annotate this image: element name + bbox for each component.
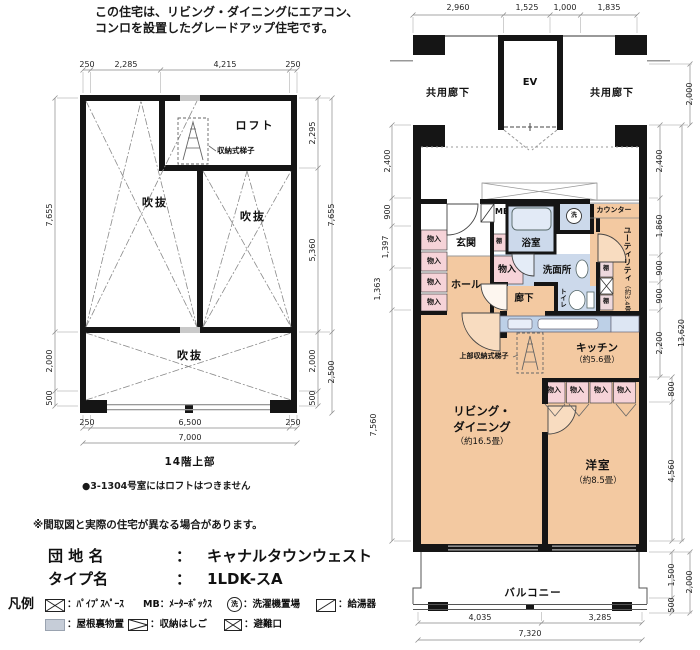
room-label-corridor-left: 共用廊下: [426, 89, 470, 99]
legend-stow-ladder: ：収納はしご: [150, 620, 207, 630]
loft-ladder-icon: [178, 118, 216, 164]
room-label-corridor-right: 共用廊下: [590, 89, 634, 99]
legend-mb: MB: [143, 599, 160, 610]
kitchen-size: （約5.6畳）: [575, 356, 620, 364]
dim: 1,860: [656, 215, 664, 238]
shelf-label: 棚: [603, 299, 609, 305]
stow-ladder-legend-icon: [128, 619, 148, 631]
dim: 2,500: [328, 361, 336, 384]
dim: 1,525: [516, 4, 539, 12]
room-label-void-3: 吹抜: [177, 350, 203, 361]
dim: 1,500: [668, 564, 676, 587]
utility-name: ユーティリティ: [623, 226, 632, 282]
dim: 2,400: [384, 150, 392, 173]
closet-label: 物入: [617, 387, 631, 394]
dim: 800: [668, 381, 676, 396]
room-label-loft: ロフト: [236, 120, 275, 131]
room-label-bath: 浴室: [521, 239, 540, 249]
room-label-living-1: リビング・: [453, 406, 511, 418]
dim: 250: [79, 61, 94, 69]
dim: 4,035: [469, 614, 492, 622]
dim: 1,363: [374, 278, 382, 301]
dim: 2,000: [686, 83, 694, 106]
sink-icon: [576, 260, 588, 278]
dim: 500: [309, 390, 317, 405]
bathtub-icon: [512, 208, 551, 230]
loft-plan-title: 14階上部: [164, 457, 215, 468]
dim: 900: [656, 260, 664, 275]
estate-name-label: 団 地 名: [48, 545, 176, 566]
shelf-label: 棚: [603, 266, 609, 272]
room-label-kitchen: キッチン: [576, 343, 618, 354]
pipe-space-icon: [600, 278, 613, 294]
estate-name-row: 団 地 名：キャナルタウンウェスト: [48, 545, 372, 566]
dim: 2,295: [309, 122, 317, 145]
dim: 7,655: [328, 204, 336, 227]
room-label-hall: ホール: [451, 281, 481, 291]
dim: 7,560: [370, 414, 378, 437]
shelf-label: 棚: [496, 239, 502, 245]
dim: 7,320: [519, 630, 542, 638]
header-note-line1: この住宅は、リビング・ダイニングにエアコン、: [95, 4, 358, 20]
header-note-line2: コンロを設置したグレードアップ住宅です。: [95, 20, 358, 36]
dim: 2,000: [309, 350, 317, 373]
colon: ：: [176, 570, 191, 588]
closet-label: 物入: [427, 258, 441, 265]
legend-meter-box: MB：ﾒｰﾀｰﾎﾞｯｸｽ: [143, 600, 212, 610]
dim: 5,360: [309, 239, 317, 262]
dim: 1,000: [554, 4, 577, 12]
dim: 1,397: [382, 236, 390, 259]
legend-pipe-space: ：ﾊﾟｲﾌﾟｽﾍﾟｰｽ: [67, 600, 124, 610]
kitchen-counter-icon: [500, 316, 639, 332]
room-label-genkan: 玄関: [456, 239, 476, 249]
legend-water-heater: ：給湯器: [338, 600, 376, 610]
room-label-balcony: バルコニー: [504, 588, 561, 599]
closet-label: 物入: [594, 387, 608, 394]
pipe-space-legend-icon: [45, 599, 65, 612]
loft-plan-note: ●3-1304号室にはロフトはつきません: [82, 478, 251, 492]
dim: 7,000: [179, 434, 202, 442]
header-note: この住宅は、リビング・ダイニングにエアコン、 コンロを設置したグレードアップ住宅…: [95, 4, 358, 36]
disclaimer-note: ※間取図と実際の住宅が異なる場合があります。: [33, 517, 263, 532]
dim: 4,215: [214, 61, 237, 69]
legend-attic-storage: ：屋根裏物置: [67, 620, 124, 630]
attic-storage-legend-icon: [45, 619, 65, 631]
dim: 500: [668, 597, 676, 612]
dim: 900: [656, 288, 664, 303]
mb-label: MB: [495, 208, 509, 216]
label-stow-ladder: 収納式梯子: [217, 147, 255, 155]
dim: 2,960: [447, 4, 470, 12]
room-label-rouka: 廊下: [514, 294, 533, 304]
dim: 2,285: [115, 61, 138, 69]
dim: 500: [46, 390, 54, 405]
upper-ladder-label: 上部収納式梯子: [460, 353, 509, 360]
balcony-lines: [413, 552, 647, 610]
closet-label: 物入: [427, 299, 441, 306]
dim: 250: [285, 419, 300, 427]
ev-door: [504, 123, 557, 150]
dim: 7,655: [46, 204, 54, 227]
estate-name-value: キャナルタウンウェスト: [207, 547, 372, 565]
escape-hatch-legend-icon: [224, 619, 242, 631]
dim: 250: [79, 419, 94, 427]
water-heater-legend-icon: [316, 599, 336, 612]
dim: 13,620: [678, 319, 686, 347]
dim: 3,285: [589, 614, 612, 622]
legend-escape-hatch: ：避難口: [244, 620, 282, 630]
counter-label: カウンター: [597, 207, 632, 214]
type-name-label: タイプ名: [48, 568, 176, 589]
room-label-ev: EV: [523, 78, 538, 88]
closet-label: 物入: [427, 236, 441, 243]
overhead-storage-icon: [482, 183, 597, 200]
type-name-value: 1LDK-スA: [207, 570, 283, 588]
closet-label: 物入: [570, 387, 584, 394]
room-label-void-1: 吹抜: [142, 197, 168, 208]
dim: 2,000: [686, 571, 694, 594]
legend-title: 凡例: [8, 598, 34, 611]
dim: 2,000: [46, 350, 54, 373]
closet-label: 物入: [427, 279, 441, 286]
bedroom-size: （約8.5畳）: [574, 477, 622, 486]
closet-label-center: 物入: [498, 266, 516, 275]
loft-plan-drawing: [30, 55, 350, 455]
closet-label: 物入: [547, 387, 561, 394]
room-label-utility: ユーティリティ（約3.4畳）: [619, 226, 635, 318]
room-label-bedroom: 洋室: [586, 460, 611, 472]
room-label-washroom: 洗面所: [543, 266, 572, 276]
toilet-icon: [569, 291, 594, 310]
dim: 250: [285, 61, 300, 69]
dim: 2,200: [656, 332, 664, 355]
loft-plan-walls: [80, 95, 297, 413]
legend-wash-glyph: 洗: [231, 601, 238, 608]
floorplan-sheet: この住宅は、リビング・ダイニングにエアコン、 コンロを設置したグレードアップ住宅…: [0, 0, 700, 650]
dim: 2,400: [656, 150, 664, 173]
dim: 4,560: [668, 460, 676, 483]
dim: 1,835: [598, 4, 621, 12]
mb-box-icon: [481, 204, 494, 222]
living-size: （約16.5畳）: [456, 438, 509, 447]
dim: 900: [384, 204, 392, 219]
room-label-void-2: 吹抜: [240, 211, 266, 222]
colon: ：: [176, 547, 191, 565]
legend-washer: ：洗濯機置場: [243, 600, 300, 610]
utility-size: （約3.4畳）: [623, 282, 631, 318]
room-label-toilet: トイレ: [559, 288, 566, 308]
washer-label: 洗: [571, 213, 577, 219]
legend-mb-text: ：ﾒｰﾀｰﾎﾞｯｸｽ: [160, 599, 212, 610]
room-label-living-2: ダイニング: [453, 422, 511, 434]
dim: 6,500: [179, 419, 202, 427]
type-name-row: タイプ名：1LDK-スA: [48, 568, 283, 589]
